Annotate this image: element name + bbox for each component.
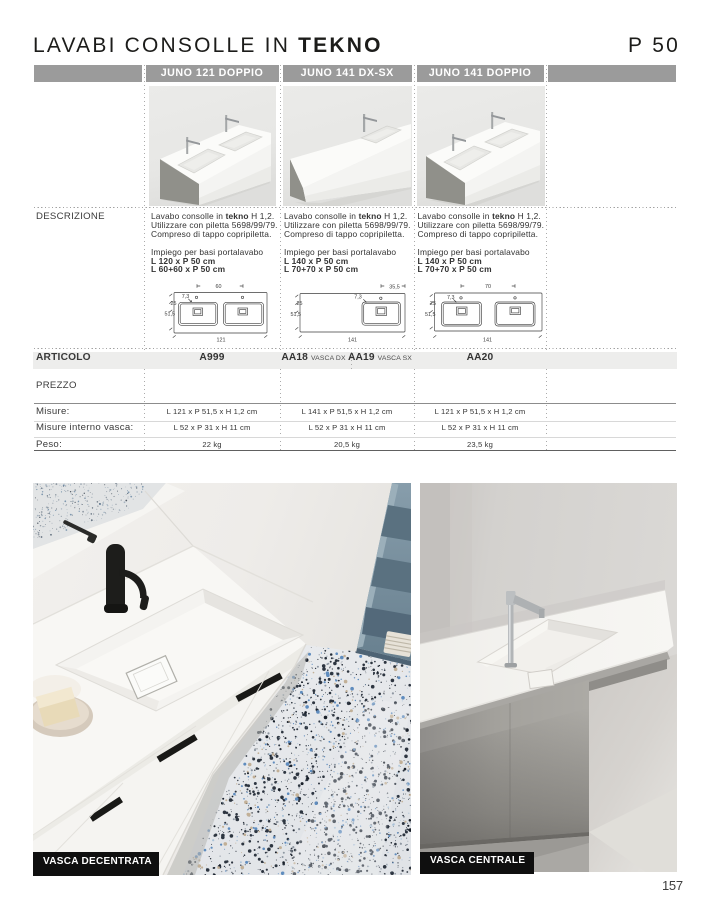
svg-text:25: 25 xyxy=(297,301,303,307)
svg-text:51,5: 51,5 xyxy=(425,312,436,318)
svg-text:60: 60 xyxy=(216,284,222,290)
svg-text:51,5: 51,5 xyxy=(291,312,302,318)
svg-text:70: 70 xyxy=(485,284,491,290)
svg-text:7,3: 7,3 xyxy=(447,295,455,301)
svg-text:25: 25 xyxy=(171,301,177,307)
svg-text:35,5: 35,5 xyxy=(389,284,400,290)
svg-text:7,3: 7,3 xyxy=(182,294,190,300)
svg-text:141: 141 xyxy=(483,338,492,344)
svg-text:7,3: 7,3 xyxy=(354,295,362,301)
svg-text:51,5: 51,5 xyxy=(165,312,176,318)
svg-text:121: 121 xyxy=(217,338,226,344)
svg-text:141: 141 xyxy=(348,338,357,344)
svg-text:25: 25 xyxy=(430,301,436,307)
